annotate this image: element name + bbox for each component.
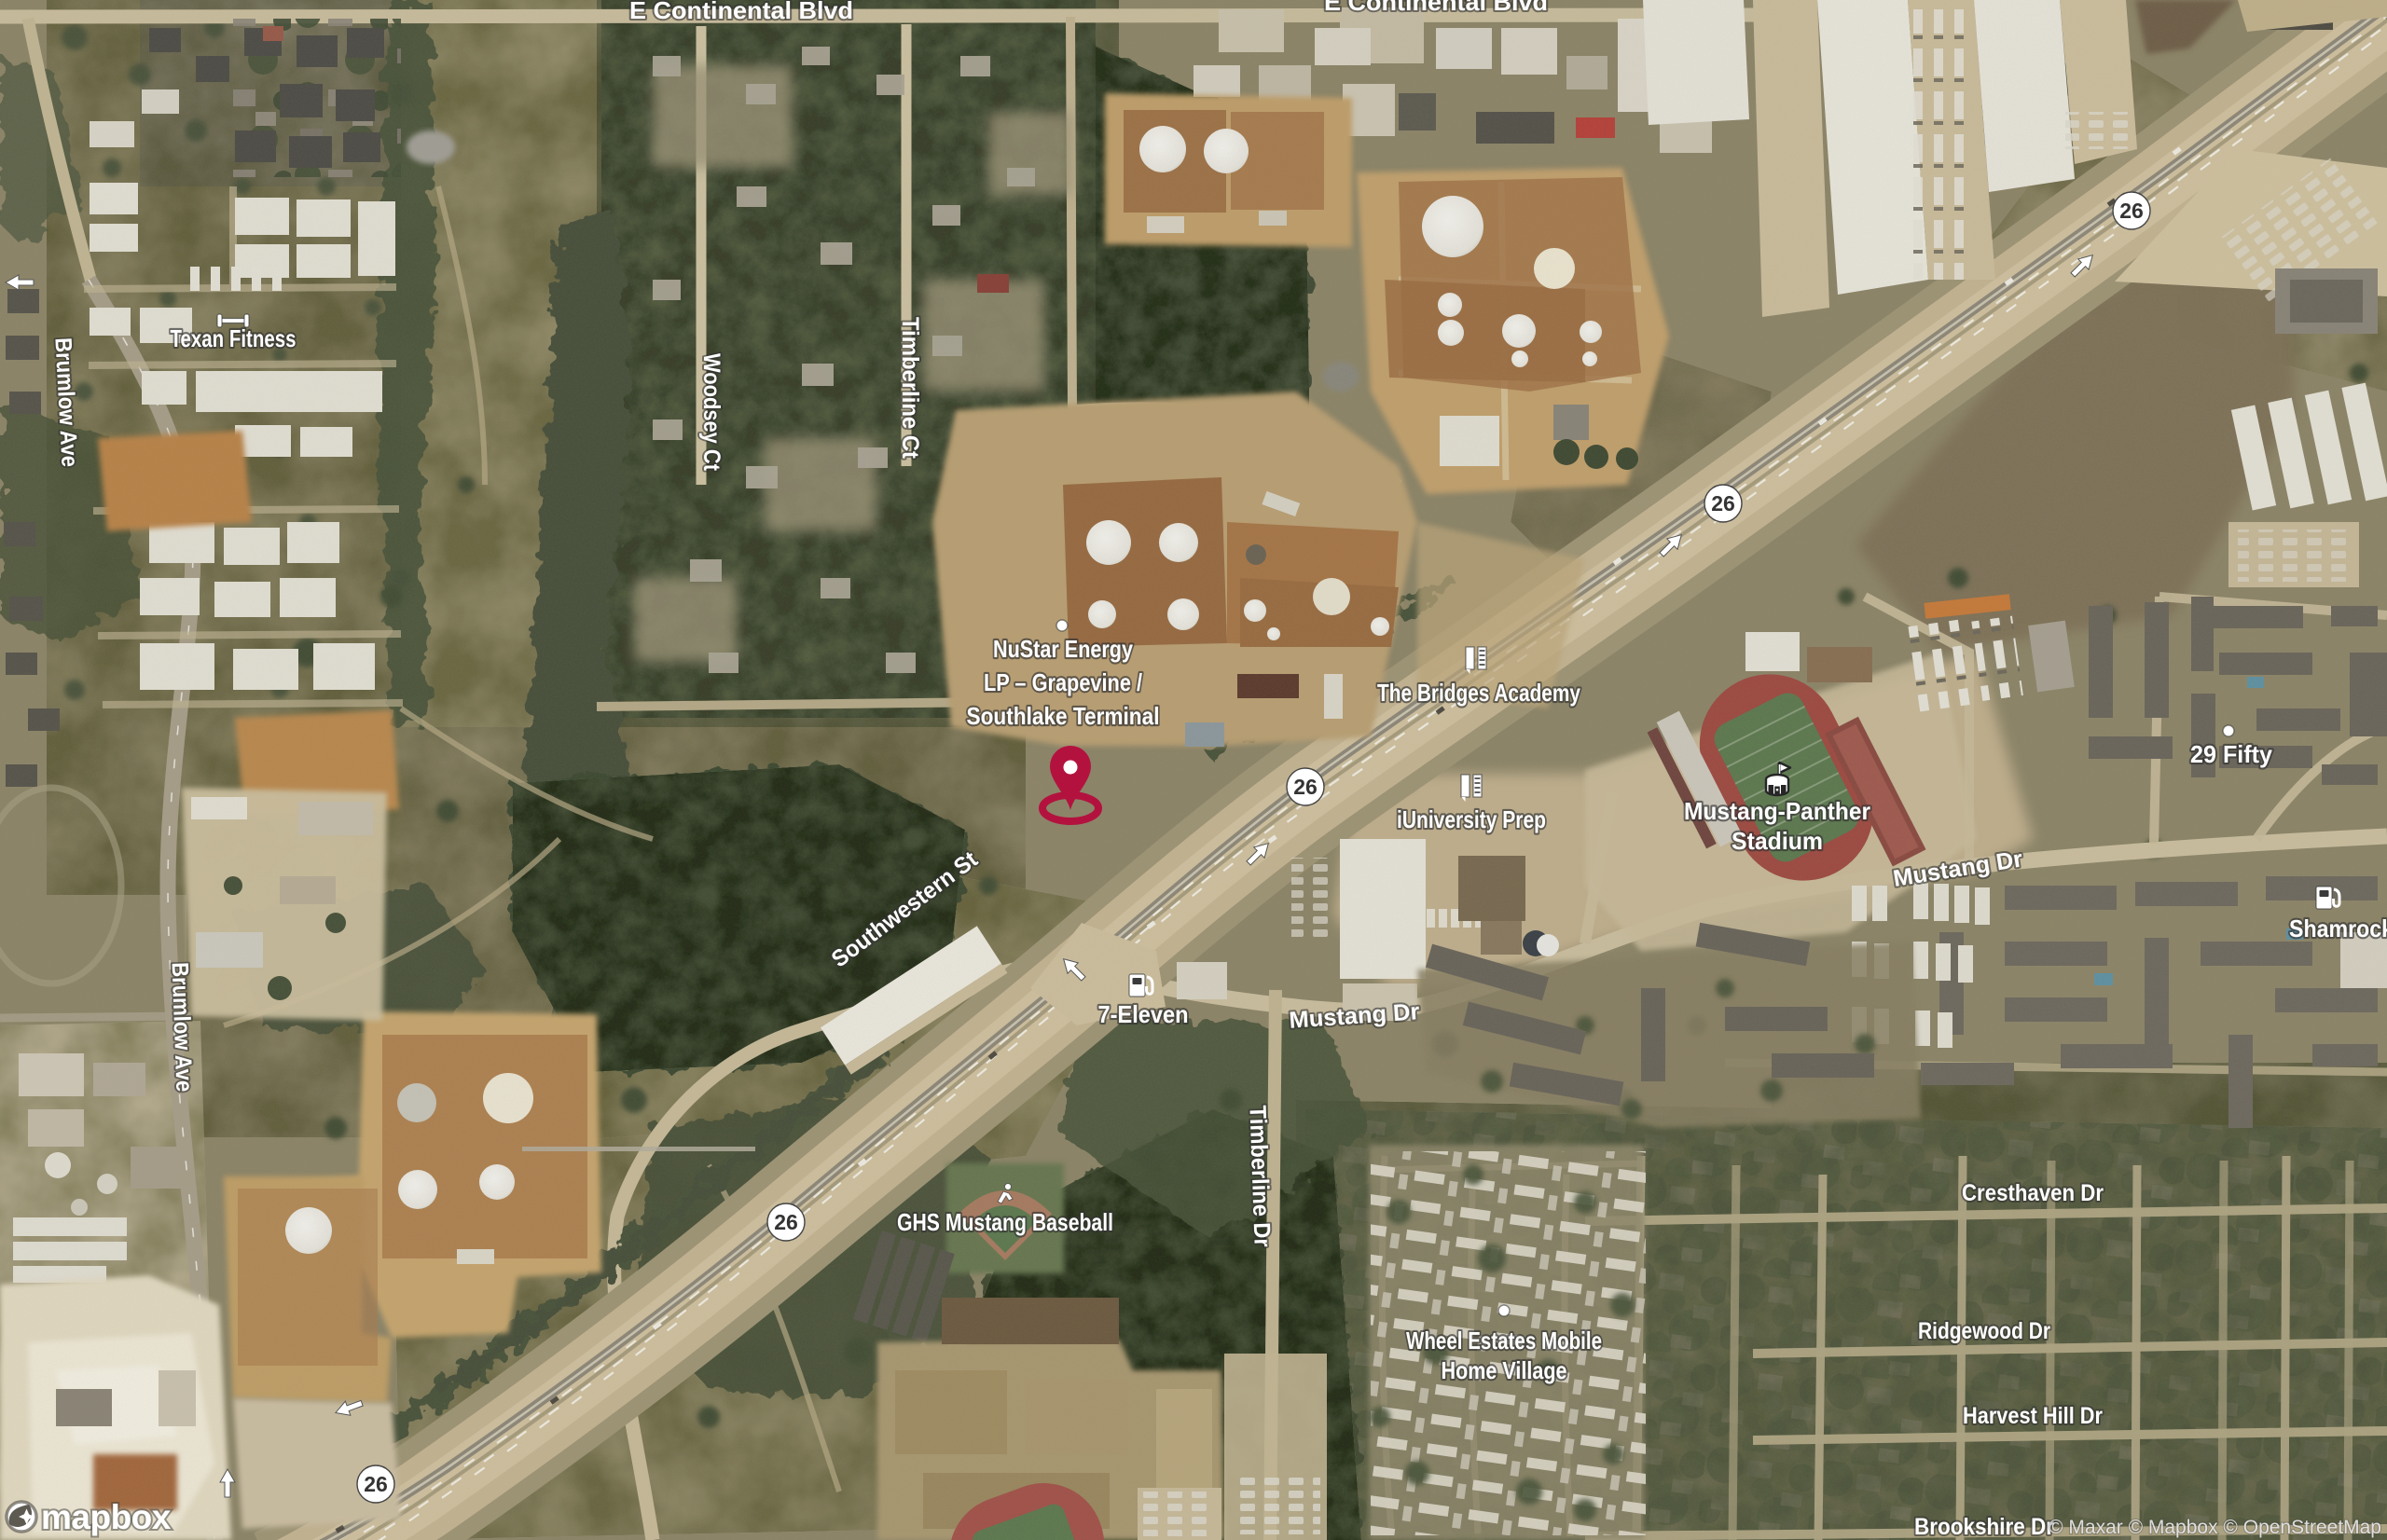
svg-text:26: 26 xyxy=(2119,199,2144,223)
svg-text:Ridgewood Dr: Ridgewood Dr xyxy=(1918,1318,2050,1344)
svg-text:Texan Fitness: Texan Fitness xyxy=(171,324,297,352)
svg-text:Cresthaven Dr: Cresthaven Dr xyxy=(1962,1180,2104,1206)
svg-text:26: 26 xyxy=(1293,775,1318,799)
svg-text:Shamrock: Shamrock xyxy=(2289,914,2387,942)
svg-text:GHS Mustang Baseball: GHS Mustang Baseball xyxy=(897,1208,1113,1236)
svg-text:E Continental Blvd: E Continental Blvd xyxy=(1324,0,1548,16)
svg-text:Brumlow Ave: Brumlow Ave xyxy=(167,962,198,1093)
svg-text:© Maxar © Mapbox © OpenStreetM: © Maxar © Mapbox © OpenStreetMap xyxy=(2049,1517,2381,1538)
svg-text:26: 26 xyxy=(774,1210,798,1234)
svg-text:iUniversity Prep: iUniversity Prep xyxy=(1397,805,1546,833)
svg-text:The Bridges Academy: The Bridges Academy xyxy=(1377,679,1580,707)
svg-text:E Continental Blvd: E Continental Blvd xyxy=(629,0,853,24)
svg-text:Wheel Estates Mobile: Wheel Estates Mobile xyxy=(1406,1327,1602,1354)
svg-text:Mustang-Panther: Mustang-Panther xyxy=(1684,797,1870,825)
svg-text:Timberline Dr: Timberline Dr xyxy=(1244,1105,1275,1247)
svg-text:NuStar Energy: NuStar Energy xyxy=(993,635,1133,663)
svg-text:Home Village: Home Village xyxy=(1442,1356,1567,1384)
svg-text:26: 26 xyxy=(1711,491,1735,516)
svg-text:Southlake Terminal: Southlake Terminal xyxy=(967,702,1160,730)
svg-text:7-Eleven: 7-Eleven xyxy=(1098,1000,1189,1028)
svg-text:26: 26 xyxy=(364,1472,388,1496)
svg-text:Woodsey Ct: Woodsey Ct xyxy=(698,353,724,472)
svg-text:29 Fifty: 29 Fifty xyxy=(2190,740,2273,768)
svg-text:LP – Grapevine /: LP – Grapevine / xyxy=(984,668,1142,696)
svg-text:Stadium: Stadium xyxy=(1732,827,1823,855)
svg-text:Harvest Hill Dr: Harvest Hill Dr xyxy=(1963,1403,2103,1429)
svg-text:mapbox: mapbox xyxy=(41,1498,172,1536)
svg-text:Timberline Ct: Timberline Ct xyxy=(897,317,923,460)
svg-text:Brookshire Dr: Brookshire Dr xyxy=(1914,1514,2054,1540)
